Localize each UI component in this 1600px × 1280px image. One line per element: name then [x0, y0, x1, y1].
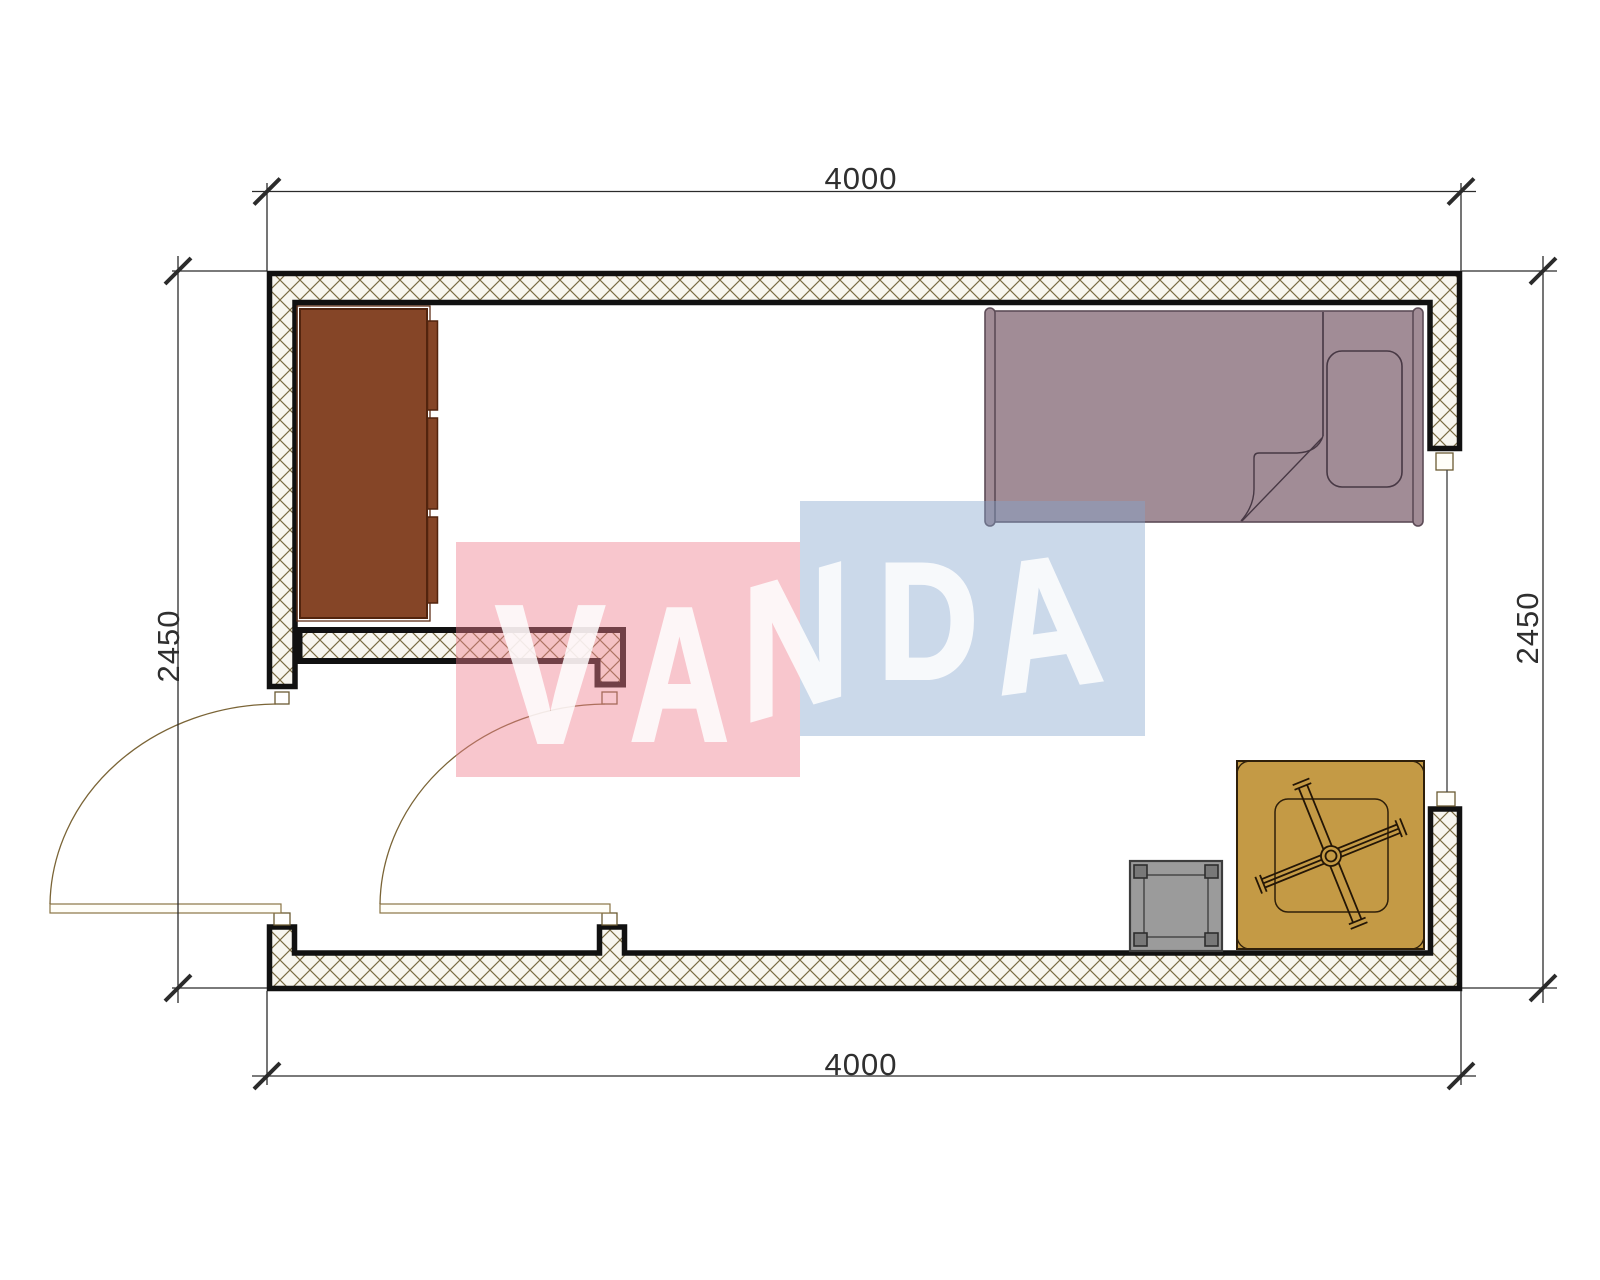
svg-text:V: V — [496, 566, 605, 785]
svg-text:2450: 2450 — [1510, 592, 1545, 665]
svg-text:A: A — [630, 569, 729, 781]
svg-text:4000: 4000 — [825, 1047, 898, 1082]
svg-text:N: N — [742, 520, 850, 764]
svg-text:2450: 2450 — [151, 610, 186, 683]
svg-text:D: D — [878, 530, 978, 714]
svg-text:4000: 4000 — [825, 161, 898, 196]
